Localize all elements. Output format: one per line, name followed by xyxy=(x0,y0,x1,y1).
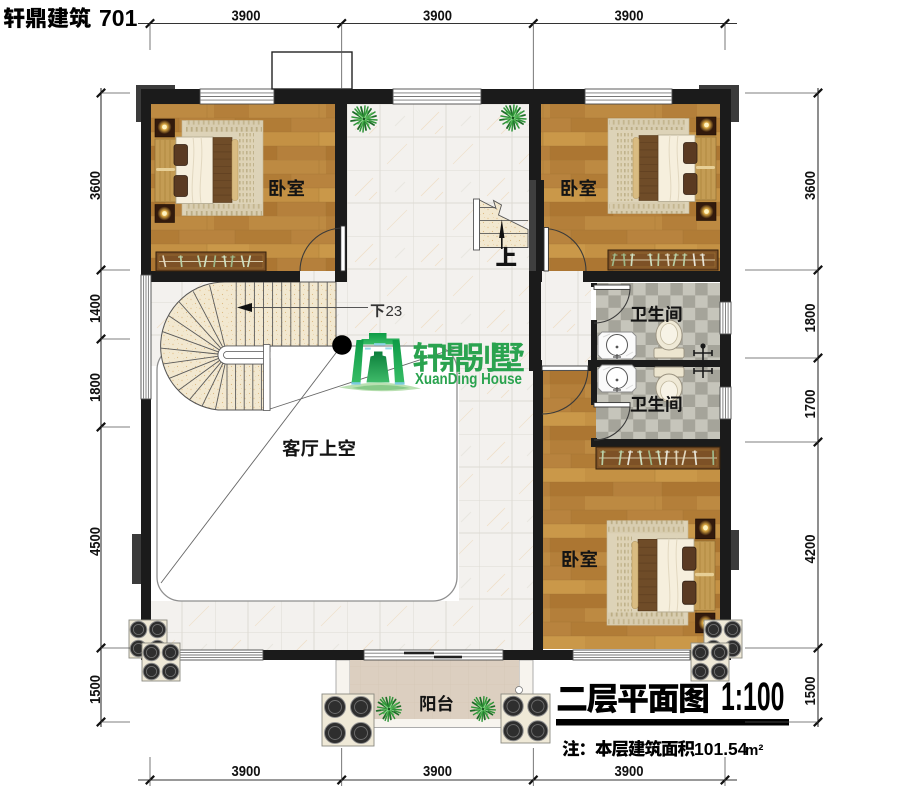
svg-text:1:100: 1:100 xyxy=(721,675,784,719)
svg-text:m²: m² xyxy=(745,742,763,759)
svg-text:3900: 3900 xyxy=(423,763,452,780)
svg-text:1800: 1800 xyxy=(87,373,104,402)
svg-text:4200: 4200 xyxy=(802,535,819,564)
svg-text:1700: 1700 xyxy=(802,390,819,419)
svg-text:3900: 3900 xyxy=(232,8,261,25)
svg-text:1800: 1800 xyxy=(802,304,819,333)
svg-text:3600: 3600 xyxy=(802,171,819,200)
svg-text:101.54: 101.54 xyxy=(694,739,748,759)
svg-text:3900: 3900 xyxy=(423,8,452,25)
svg-text:3900: 3900 xyxy=(232,763,261,780)
svg-text:1500: 1500 xyxy=(802,677,819,706)
svg-text:3900: 3900 xyxy=(615,763,644,780)
svg-text:23: 23 xyxy=(386,303,403,320)
svg-text:3900: 3900 xyxy=(615,8,644,25)
svg-text:XuanDing House: XuanDing House xyxy=(415,371,522,388)
svg-text:701: 701 xyxy=(99,5,138,31)
svg-text:4500: 4500 xyxy=(87,527,104,556)
svg-text:3600: 3600 xyxy=(87,171,104,200)
svg-text:1400: 1400 xyxy=(87,294,104,323)
svg-text:1500: 1500 xyxy=(87,675,104,704)
